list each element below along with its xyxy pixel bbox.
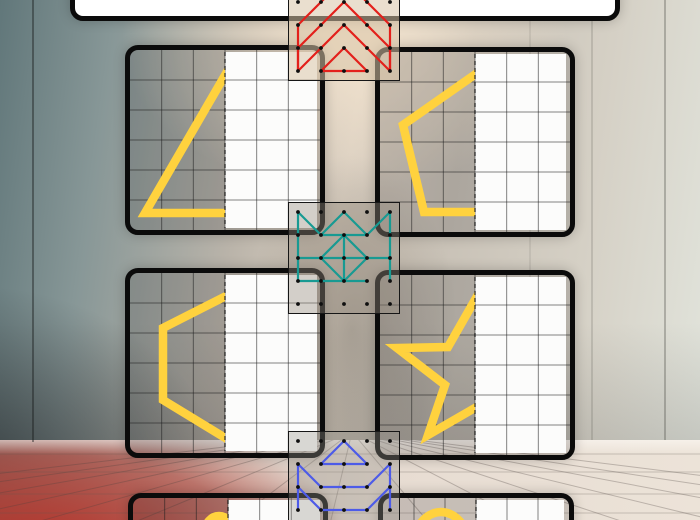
link-node-blue[interactable] xyxy=(288,431,400,520)
puzzle-panel-mid-right[interactable] xyxy=(375,47,575,237)
link-node-red[interactable] xyxy=(288,0,400,81)
puzzle-panel-bot-right[interactable] xyxy=(375,270,575,460)
game-scene xyxy=(0,0,700,520)
puzzle-panel-edge-right[interactable] xyxy=(378,493,574,520)
link-node-teal[interactable] xyxy=(288,202,400,314)
